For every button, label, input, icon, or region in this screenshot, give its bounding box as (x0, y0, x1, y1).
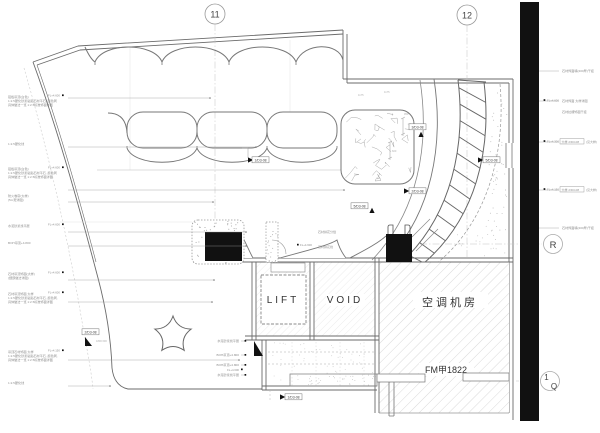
svg-text:2/D3-08: 2/D3-08 (84, 330, 96, 334)
svg-text:石材饰面墙(200厚)干挂: 石材饰面墙(200厚)干挂 (562, 225, 594, 230)
svg-text:具体做法一览 1:2.5标准饰面详图: 具体做法一览 1:2.5标准饰面详图 (8, 102, 53, 107)
corridor-ceiling (268, 342, 377, 402)
svg-text:石材饰面墙(200厚)干挂: 石材饰面墙(200厚)干挂 (562, 68, 594, 73)
svg-text:(见大样): (见大样) (586, 187, 597, 192)
ac-room-hatch (379, 262, 509, 413)
svg-text:600: 600 (392, 149, 397, 153)
ceiling-pills (108, 112, 337, 162)
svg-text:FL+4.600: FL+4.600 (547, 99, 559, 103)
diagonal-corner (33, 46, 80, 65)
top-border (78, 30, 343, 50)
svg-text:1:2.5硬化线: 1:2.5硬化线 (8, 380, 24, 385)
svg-text:大样 2/D3-08: 大样 2/D3-08 (562, 187, 580, 192)
ceiling-scallops (85, 47, 343, 65)
svg-text:FL+4.600: FL+4.600 (48, 165, 60, 169)
svg-text:(见大样): (见大样) (586, 139, 597, 144)
svg-text:水泥砂浆找平层: 水泥砂浆找平层 (217, 372, 239, 377)
room-label-ac: 空调机房 (422, 295, 478, 309)
wall-pier (266, 222, 286, 262)
svg-text:11: 11 (210, 10, 219, 20)
svg-text:Q: Q (551, 382, 557, 391)
left-boundary-dashed (24, 68, 93, 389)
svg-text:水泥砂浆找平层: 水泥砂浆找平层 (217, 338, 239, 343)
structural-column-left (192, 220, 244, 264)
room-label-void: VOID (327, 295, 363, 306)
svg-text:具体做法一览 1:2.5标准饰面详图: 具体做法一览 1:2.5标准饰面详图 (8, 174, 53, 179)
svg-text:5/D3-08: 5/D3-08 (485, 158, 497, 162)
grid-bubble-R: R (544, 235, 563, 254)
svg-text:(细部做法详图): (细部做法详图) (8, 275, 29, 280)
svg-text:1175: 1175 (384, 90, 390, 94)
svg-text:BOH吊顶+4.800: BOH吊顶+4.800 (217, 353, 240, 357)
svg-text:1:2.5硬化线: 1:2.5硬化线 (8, 141, 24, 146)
upper-right-border (343, 79, 513, 83)
svg-text:1800 600: 1800 600 (96, 339, 107, 343)
svg-text:BOH吊顶+4.800: BOH吊顶+4.800 (217, 363, 240, 367)
wall-opening (504, 143, 514, 168)
wave-cusps (236, 236, 386, 258)
svg-text:石材拼花线: 石材拼花线 (318, 244, 333, 249)
star-ornament (155, 316, 191, 350)
svg-text:(5m宽详图): (5m宽详图) (8, 197, 24, 202)
cad-floorplan-screenshot: LIFT VOID 空调机房 FM甲1822 11 12 R 1 Q FL+4.… (0, 0, 600, 433)
svg-text:FL+4.600: FL+4.600 (48, 93, 60, 97)
svg-text:3/D3-08: 3/D3-08 (411, 125, 423, 129)
svg-text:水泥砂浆找平层: 水泥砂浆找平层 (8, 223, 30, 228)
svg-text:2/D3-08: 2/D3-08 (411, 189, 423, 193)
svg-text:12: 12 (462, 11, 472, 21)
door-label: FM甲1822 (425, 365, 467, 375)
svg-text:5/D3-08: 5/D3-08 (353, 204, 365, 208)
floorplan-canvas: LIFT VOID 空调机房 FM甲1822 11 12 R 1 Q FL+4.… (0, 0, 600, 433)
svg-text:1175: 1175 (358, 93, 364, 97)
svg-text:石材拉槽饰面干挂: 石材拉槽饰面干挂 (562, 109, 587, 114)
svg-text:1/D3-08: 1/D3-08 (254, 158, 266, 162)
grid-bubble-1Q: 1 Q (541, 372, 560, 392)
grid-bubble-11: 11 (205, 4, 225, 24)
column-fill (205, 232, 242, 261)
svg-text:1: 1 (544, 373, 549, 382)
svg-text:FL+4.300: FL+4.300 (547, 140, 559, 144)
shear-wall-bar (520, 2, 539, 421)
svg-text:FL+4.600: FL+4.600 (48, 270, 60, 274)
svg-text:大样 2/D3-08: 大样 2/D3-08 (562, 139, 580, 144)
svg-text:FL+4.600: FL+4.600 (300, 243, 312, 247)
svg-text:1/D3-08: 1/D3-08 (287, 395, 299, 399)
svg-text:石材拼花分缝: 石材拼花分缝 (318, 229, 336, 234)
svg-text:FL+4.600: FL+4.600 (48, 290, 60, 294)
svg-text:具体做法一览 1:2.5标准饰面详图: 具体做法一览 1:2.5标准饰面详图 (8, 357, 53, 362)
svg-text:R: R (550, 240, 557, 251)
svg-text:950: 950 (404, 112, 409, 116)
svg-text:FL+4.600: FL+4.600 (48, 222, 60, 226)
svg-text:FL+4.150: FL+4.150 (48, 348, 60, 352)
structural-column-right (386, 225, 412, 262)
svg-text:石材饰面 大样详图: 石材饰面 大样详图 (562, 98, 588, 103)
column-fill (386, 234, 412, 262)
right-wall (509, 79, 513, 420)
svg-text:FL+4.150: FL+4.150 (547, 188, 559, 192)
svg-text:具体做法一览 1:2.5标准饰面详图: 具体做法一览 1:2.5标准饰面详图 (8, 299, 53, 304)
grid-bubble-12: 12 (457, 5, 477, 25)
svg-text:FL+4.600: FL+4.600 (227, 368, 239, 372)
room-label-lift: LIFT (267, 295, 300, 306)
border-step (343, 30, 347, 83)
svg-text:BOH吊顶+4.800: BOH吊顶+4.800 (8, 241, 31, 245)
